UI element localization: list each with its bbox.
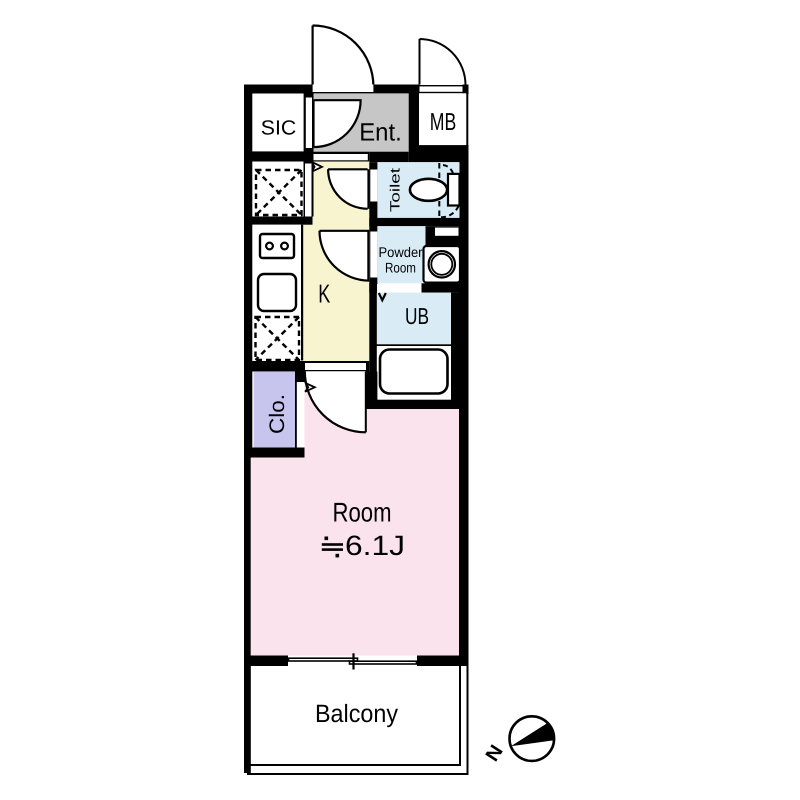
svg-text:Powder: Powder [379, 244, 423, 260]
svg-text:Room: Room [385, 260, 416, 276]
svg-text:K: K [318, 279, 330, 309]
svg-text:Toilet: Toilet [388, 168, 403, 212]
svg-text:Ent.: Ent. [359, 119, 402, 147]
svg-text:Clo.: Clo. [266, 394, 289, 434]
svg-text:MB: MB [430, 109, 457, 136]
svg-text:UB: UB [405, 303, 429, 329]
svg-text:Balcony: Balcony [315, 700, 398, 728]
svg-text:Room: Room [333, 498, 392, 528]
svg-text:SIC: SIC [261, 117, 297, 140]
svg-text:6.1J: 6.1J [345, 530, 405, 561]
